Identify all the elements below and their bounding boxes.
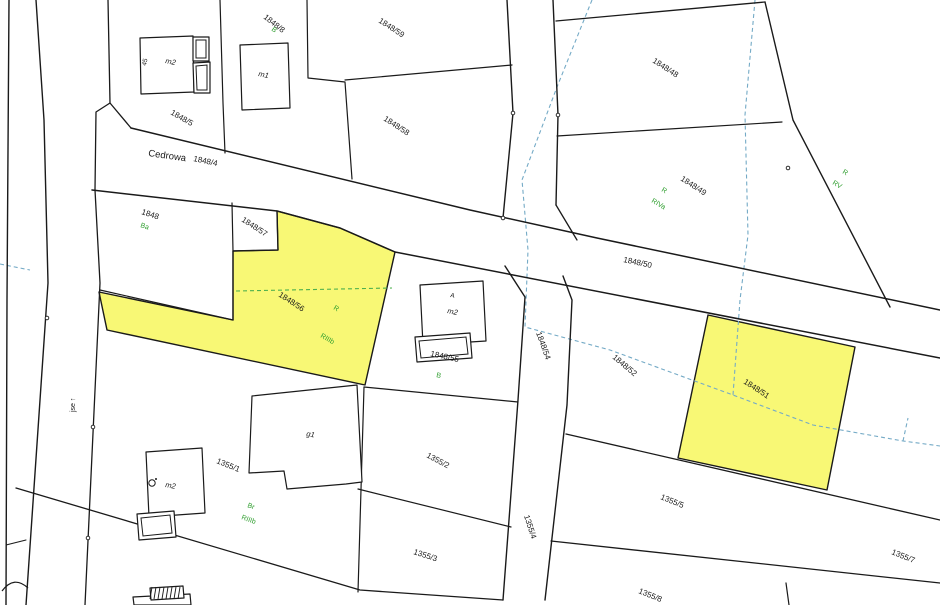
- parcel-boundary-23: [786, 583, 789, 605]
- parcel-label-1848-57-15: 1848/57: [240, 215, 270, 239]
- class-label-r-11: R: [841, 169, 849, 178]
- building-m2-topleft-annex-1: [193, 37, 209, 61]
- parcel-label-1355-7-40: 1355/7: [890, 548, 917, 566]
- parcel-boundary-28: [6, 540, 26, 545]
- parcel-label-1848-49-8: 1848/49: [679, 174, 709, 198]
- class-label-br-27: Br: [246, 502, 256, 511]
- parcel-boundary-0: [6, 0, 9, 605]
- parcel-boundary-1: [26, 0, 48, 605]
- parcel-boundary-12: [345, 65, 512, 80]
- parcel-label-1355-8-41: 1355/8: [637, 587, 664, 605]
- parcel-boundary-15: [556, 205, 577, 240]
- highlighted-parcel-1848-56[interactable]: [99, 211, 395, 385]
- well-symbol-dot: [155, 478, 157, 480]
- parcel-label-1848-52-23: 1848/52: [611, 353, 639, 379]
- cadastral-map[interactable]: 1848/8B1848/5Cedrowa1848/41848/591848/58…: [0, 0, 940, 605]
- parcel-boundary-19: [503, 266, 525, 600]
- parcel-label-1848-13: 1848: [140, 207, 160, 221]
- parcel-boundary-24: [364, 387, 518, 402]
- parcel-label-1355-3-37: 1355/3: [412, 547, 439, 563]
- parcel-boundary-11: [307, 0, 352, 179]
- parcel-boundary-18: [557, 122, 782, 136]
- parcel-boundary-3: [85, 190, 100, 605]
- parcel-boundary-13: [503, 0, 513, 218]
- parcel-label-1848-48-7: 1848/48: [651, 56, 681, 80]
- boundary-vertex-dot-3: [511, 111, 515, 115]
- parcel-label-1848-59-5: 1848/59: [377, 16, 407, 40]
- class-label-r-9: R: [660, 187, 668, 196]
- class-label-riva-10: RIVa: [650, 198, 667, 212]
- boundary-vertex-dot-0: [45, 316, 49, 320]
- parcel-label-1355-4-38: 1355/4: [522, 514, 538, 541]
- boundary-vertex-dot-1: [91, 425, 95, 429]
- parcel-boundary-17: [765, 2, 890, 307]
- parcel-label-1848-4-4: 1848/4: [193, 154, 219, 168]
- parcel-boundary-22: [551, 541, 940, 583]
- parcel-boundary-16: [556, 2, 765, 21]
- cadastral-map-container: 1848/8B1848/5Cedrowa1848/41848/591848/58…: [0, 0, 940, 605]
- class-label-riiib-28: RIIIb: [240, 514, 256, 526]
- utility-dashed-line-3: [0, 264, 30, 270]
- parcel-boundary-2: [95, 0, 110, 190]
- parcel-label-1848-50-19: 1848/50: [623, 255, 654, 270]
- parcel-label-1355-2-36: 1355/2: [425, 451, 451, 471]
- class-label-ba-14: Ba: [139, 222, 149, 231]
- road-label-jse-25: jse ↑: [70, 398, 77, 413]
- boundary-vertex-dot-6: [786, 166, 790, 170]
- parcel-label-1848-5-2: 1848/5: [169, 108, 195, 128]
- street-label-cedrowa-3: Cedrowa: [148, 148, 188, 164]
- parcel-boundary-4: [110, 103, 131, 128]
- boundary-vertex-dot-2: [86, 536, 90, 540]
- parcel-boundary-10: [220, 0, 225, 153]
- utility-dashed-line-1: [903, 418, 908, 441]
- boundary-vertex-dot-4: [501, 216, 505, 220]
- parcel-boundary-27: [358, 489, 511, 527]
- class-label-rv-12: RV: [831, 180, 843, 191]
- parcel-boundary-14: [553, 0, 558, 205]
- parcel-label-1848-54-22: 1848/54: [534, 331, 553, 362]
- cadastral-map-viewport[interactable]: 1848/8B1848/5Cedrowa1848/41848/591848/58…: [0, 0, 940, 605]
- parcel-boundary-20: [545, 276, 572, 600]
- boundary-vertex-dot-5: [556, 113, 560, 117]
- parcel-label-1848-58-6: 1848/58: [382, 114, 412, 138]
- highlighted-parcel-1848-51[interactable]: [678, 315, 855, 490]
- building-label-g1-29: g1: [306, 429, 316, 439]
- class-label-b-21: B: [436, 372, 442, 380]
- parcel-label-1355-1-26: 1355/1: [215, 457, 242, 475]
- parcel-label-1355-5-39: 1355/5: [659, 493, 686, 511]
